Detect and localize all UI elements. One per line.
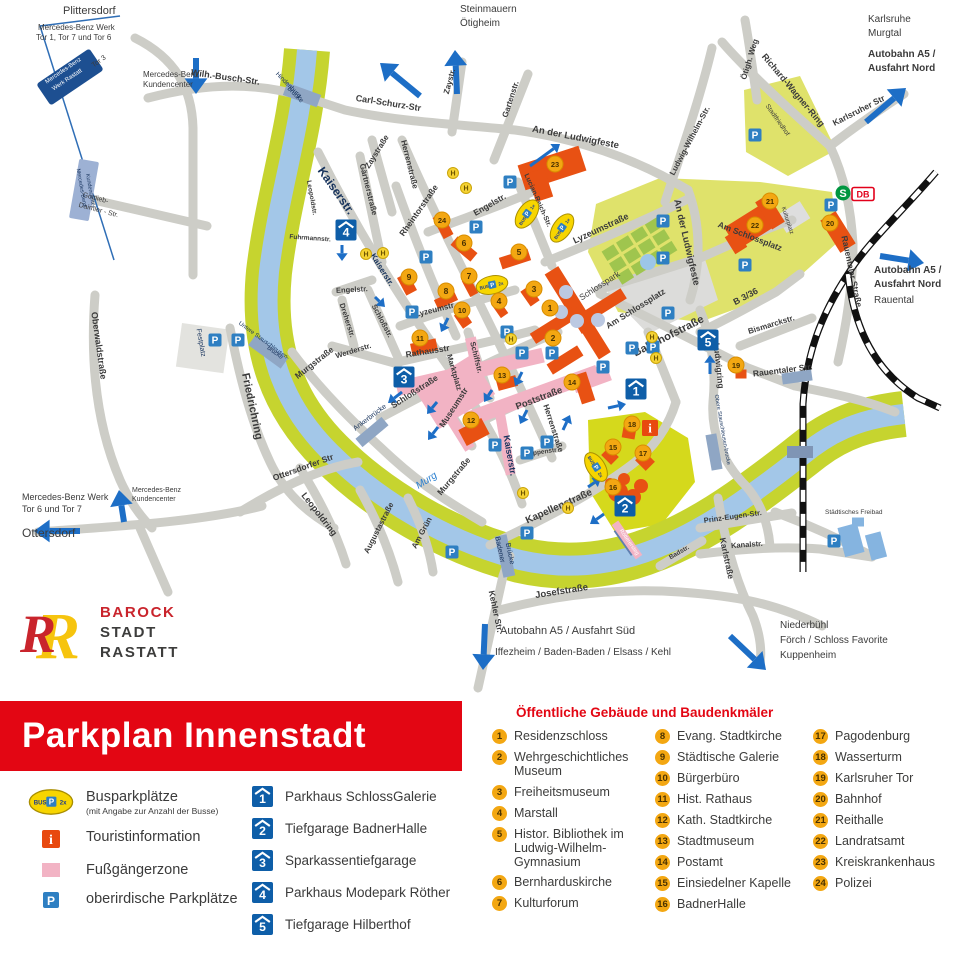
poi-marker[interactable]: 20 bbox=[822, 215, 838, 231]
svg-text:P: P bbox=[524, 529, 531, 540]
svg-text:H: H bbox=[363, 252, 368, 259]
building-number-badge: 15 bbox=[655, 876, 670, 891]
street-label: Autobahn A5 / bbox=[874, 265, 942, 276]
surface-parking-icon[interactable]: P bbox=[420, 251, 433, 264]
legend-sublabel: (mit Angabe zur Anzahl der Busse) bbox=[86, 806, 218, 816]
svg-text:P: P bbox=[49, 798, 55, 807]
building-list-item: 18Wasserturm bbox=[813, 750, 963, 765]
db-logo: DB bbox=[852, 188, 874, 201]
svg-text:3: 3 bbox=[532, 284, 537, 294]
building-list-item: 22Landratsamt bbox=[813, 834, 963, 849]
surface-parking-icon[interactable]: P bbox=[521, 447, 534, 460]
svg-text:3: 3 bbox=[259, 856, 266, 870]
poi-marker[interactable]: 15 bbox=[605, 439, 621, 455]
svg-text:2x: 2x bbox=[60, 801, 67, 807]
street-label: Förch / Schloss Favorite bbox=[780, 635, 888, 646]
poi-marker[interactable]: 11 bbox=[412, 330, 428, 346]
poi-marker[interactable]: 9 bbox=[401, 269, 417, 285]
building-label: Wehrgeschichtliches Museum bbox=[514, 750, 657, 779]
building-label: Hist. Rathaus bbox=[677, 792, 752, 806]
building-label: Bürgerbüro bbox=[677, 771, 740, 785]
building-number-badge: 1 bbox=[492, 729, 507, 744]
street-label: Tor 6 und Tor 7 bbox=[22, 504, 82, 514]
building-label: Wasserturm bbox=[835, 750, 902, 764]
svg-text:P: P bbox=[449, 548, 456, 559]
bus-stop-icon[interactable]: H bbox=[448, 168, 459, 179]
surface-parking-icon[interactable]: P bbox=[446, 546, 459, 559]
building-number-badge: 18 bbox=[813, 750, 828, 765]
building-list-item: 14Postamt bbox=[655, 855, 815, 870]
svg-text:21: 21 bbox=[766, 197, 774, 206]
parking-garage-item: 1Parkhaus SchlossGalerie bbox=[252, 786, 450, 807]
building-label: Residenzschloss bbox=[514, 729, 608, 743]
svg-text:i: i bbox=[49, 833, 53, 848]
logo-line-1: BAROCK bbox=[100, 603, 179, 623]
building-number-badge: 6 bbox=[492, 875, 507, 890]
svg-text:P: P bbox=[665, 309, 672, 320]
surface-parking-icon[interactable]: P bbox=[546, 347, 559, 360]
buildings-column-2: 8Evang. Stadtkirche9Städtische Galerie10… bbox=[655, 729, 815, 912]
bus-stop-icon[interactable]: H bbox=[461, 183, 472, 194]
svg-text:11: 11 bbox=[416, 334, 424, 343]
svg-text:6: 6 bbox=[462, 238, 467, 248]
svg-text:H: H bbox=[565, 506, 570, 513]
poi-marker[interactable]: 10 bbox=[454, 302, 470, 318]
building-label: Histor. Bibliothek im Ludwig-Wilhelm-Gym… bbox=[514, 827, 657, 870]
svg-text:P: P bbox=[519, 349, 526, 360]
parking-garage-icon[interactable]: 5 bbox=[252, 914, 273, 935]
poi-marker[interactable]: 24 bbox=[434, 212, 450, 228]
legend-item: Fußgängerzone bbox=[28, 862, 238, 878]
poi-marker[interactable]: 5 bbox=[511, 244, 527, 260]
building-label: Bernharduskirche bbox=[514, 875, 612, 889]
surface-parking-icon[interactable]: P bbox=[828, 535, 841, 548]
poi-marker[interactable]: 4 bbox=[491, 293, 507, 309]
surface-parking-icon[interactable]: P bbox=[749, 129, 762, 142]
surface-parking-icon: P bbox=[28, 891, 74, 909]
svg-text:13: 13 bbox=[498, 371, 506, 380]
street-label: Mercedes-Benz Werk bbox=[38, 23, 116, 32]
legend-label: Touristinformation bbox=[86, 829, 200, 845]
parking-garage-label: Tiefgarage Hilberthof bbox=[285, 917, 411, 932]
logo-line-2: STADT bbox=[100, 623, 179, 643]
legend-item: Poberirdische Parkplätze bbox=[28, 891, 238, 909]
building-label: Städtische Galerie bbox=[677, 750, 779, 764]
poi-marker[interactable]: 17 bbox=[635, 445, 651, 461]
parking-garage-label: Sparkassentiefgarage bbox=[285, 853, 416, 868]
building-label: Postamt bbox=[677, 855, 723, 869]
building-label: Polizei bbox=[835, 876, 872, 890]
svg-text:24: 24 bbox=[438, 216, 447, 225]
surface-parking-icon[interactable]: P bbox=[521, 527, 534, 540]
svg-text:P: P bbox=[473, 223, 480, 234]
street-label: Murgtal bbox=[868, 28, 901, 39]
parking-garage-list: 1Parkhaus SchlossGalerie2Tiefgarage Badn… bbox=[252, 786, 450, 935]
parking-garage-icon[interactable]: 1 bbox=[626, 379, 647, 400]
building-list-item: 17Pagodenburg bbox=[813, 729, 963, 744]
legend-label: Busparkplätze bbox=[86, 789, 218, 805]
svg-text:H: H bbox=[463, 186, 468, 193]
poi-marker[interactable]: 14 bbox=[564, 374, 580, 390]
building-label: Evang. Stadtkirche bbox=[677, 729, 782, 743]
building-list-item: 6Bernharduskirche bbox=[492, 875, 657, 890]
building-label: Karlsruher Tor bbox=[835, 771, 913, 785]
svg-text:H: H bbox=[653, 356, 658, 363]
street-label: Mercedes-Benz bbox=[132, 487, 182, 494]
building-number-badge: 2 bbox=[492, 750, 507, 765]
svg-text:P: P bbox=[828, 201, 835, 212]
svg-text:8: 8 bbox=[444, 286, 449, 296]
building-list-item: 7Kulturforum bbox=[492, 896, 657, 911]
surface-parking-icon[interactable]: P bbox=[662, 307, 675, 320]
parking-garage-label: Parkhaus Modepark Röther bbox=[285, 885, 450, 900]
svg-text:P: P bbox=[629, 344, 636, 355]
svg-text:P: P bbox=[544, 438, 551, 449]
building-number-badge: 19 bbox=[813, 771, 828, 786]
building-list-item: 19Karlsruher Tor bbox=[813, 771, 963, 786]
svg-text:BUS: BUS bbox=[34, 801, 47, 807]
svg-text:2: 2 bbox=[259, 824, 266, 838]
building-list-item: 4Marstall bbox=[492, 806, 657, 821]
building-list-item: 3Freiheitsmuseum bbox=[492, 785, 657, 800]
building-number-badge: 22 bbox=[813, 834, 828, 849]
building-label: Einsiedelner Kapelle bbox=[677, 876, 791, 890]
street-label: Mercedes-Benz Werk bbox=[22, 492, 109, 502]
bus-stop-icon[interactable]: H bbox=[563, 503, 574, 514]
svg-text:P: P bbox=[423, 253, 430, 264]
street-label: Städtisches Freibad bbox=[825, 509, 883, 516]
bus-stop-icon[interactable]: H bbox=[378, 248, 389, 259]
svg-text:2: 2 bbox=[622, 502, 629, 516]
svg-text:4: 4 bbox=[343, 226, 350, 240]
svg-text:19: 19 bbox=[732, 361, 740, 370]
svg-text:23: 23 bbox=[551, 160, 559, 169]
bus-parking-icon[interactable]: BUSP2x bbox=[29, 790, 72, 814]
svg-text:P: P bbox=[660, 217, 667, 228]
building-number-badge: 10 bbox=[655, 771, 670, 786]
svg-text:P: P bbox=[549, 349, 556, 360]
building-label: Stadtmuseum bbox=[677, 834, 754, 848]
building-number-badge: 9 bbox=[655, 750, 670, 765]
svg-text:P: P bbox=[492, 441, 499, 452]
building-number-badge: 17 bbox=[813, 729, 828, 744]
poi-marker[interactable]: 8 bbox=[438, 283, 454, 299]
street-label: Steinmauern bbox=[460, 4, 517, 15]
building-label: Bahnhof bbox=[835, 792, 882, 806]
poi-marker[interactable]: 19 bbox=[728, 357, 744, 373]
logo-r-emblem: R R bbox=[20, 592, 90, 674]
parking-garage-item: 4Parkhaus Modepark Röther bbox=[252, 882, 450, 903]
surface-parking-icon[interactable]: P bbox=[597, 361, 610, 374]
building-label: Marstall bbox=[514, 806, 558, 820]
building-number-badge: 4 bbox=[492, 806, 507, 821]
svg-text:P: P bbox=[235, 336, 242, 347]
legend-label: Fußgängerzone bbox=[86, 862, 188, 878]
building-list-item: 13Stadtmuseum bbox=[655, 834, 815, 849]
svg-text:P: P bbox=[524, 449, 531, 460]
surface-parking-icon[interactable]: P bbox=[489, 439, 502, 452]
city-logo: R R BAROCK STADT RASTATT bbox=[20, 592, 179, 674]
building-number-badge: 8 bbox=[655, 729, 670, 744]
svg-text:P: P bbox=[212, 336, 219, 347]
legend-item: iTouristinformation bbox=[28, 829, 238, 849]
parking-garage-icon[interactable]: 3 bbox=[394, 367, 415, 388]
parking-garage-icon[interactable]: 4 bbox=[252, 882, 273, 903]
surface-parking-icon[interactable]: P bbox=[626, 342, 639, 355]
parking-garage-item: 3Sparkassentiefgarage bbox=[252, 850, 450, 871]
building-list-item: 9Städtische Galerie bbox=[655, 750, 815, 765]
poi-marker[interactable]: 18 bbox=[624, 416, 640, 432]
parking-garage-icon[interactable]: 5 bbox=[698, 330, 719, 351]
svg-text:7: 7 bbox=[467, 271, 472, 281]
building-list-item: 21Reithalle bbox=[813, 813, 963, 828]
svg-text:i: i bbox=[648, 421, 652, 436]
building-number-badge: 13 bbox=[655, 834, 670, 849]
building-list-item: 11Hist. Rathaus bbox=[655, 792, 815, 807]
sbahn-logo: S bbox=[836, 186, 851, 201]
svg-text:H: H bbox=[508, 337, 513, 344]
poi-marker[interactable]: 21 bbox=[762, 193, 778, 209]
surface-parking-icon[interactable]: P bbox=[504, 176, 517, 189]
building-label: Kulturforum bbox=[514, 896, 579, 910]
legend-label: oberirdische Parkplätze bbox=[86, 891, 238, 907]
parking-garage-item: 2Tiefgarage BadnerHalle bbox=[252, 818, 450, 839]
street-label: Kuppenheim bbox=[780, 650, 836, 661]
parking-garage-label: Tiefgarage BadnerHalle bbox=[285, 821, 427, 836]
bus-stop-icon[interactable]: H bbox=[506, 334, 517, 345]
building-number-badge: 21 bbox=[813, 813, 828, 828]
surface-parking-icon[interactable]: P bbox=[232, 334, 245, 347]
svg-text:P: P bbox=[507, 178, 514, 189]
svg-text:P: P bbox=[752, 131, 759, 142]
parkplan-poster: PlittersdorfMercedes-Benz WerkTor 1, Tor… bbox=[0, 0, 966, 966]
tourist-info-icon[interactable]: i bbox=[642, 420, 658, 436]
svg-text:S: S bbox=[839, 188, 846, 200]
surface-parking-icon[interactable]: P bbox=[739, 259, 752, 272]
parking-garage-icon[interactable]: 3 bbox=[252, 850, 273, 871]
parking-garage-icon[interactable]: 2 bbox=[252, 818, 273, 839]
building-number-badge: 23 bbox=[813, 855, 828, 870]
pedestrian-zone-icon bbox=[28, 862, 74, 878]
page-title-banner: Parkplan Innenstadt bbox=[0, 701, 462, 771]
surface-parking-icon[interactable]: P bbox=[516, 347, 529, 360]
svg-text:DB: DB bbox=[857, 190, 870, 200]
street-label: Tor 1, Tor 7 und Tor 6 bbox=[36, 33, 112, 42]
svg-text:18: 18 bbox=[628, 420, 636, 429]
building-list-item: 10Bürgerbüro bbox=[655, 771, 815, 786]
buildings-list-title: Öffentliche Gebäude und Baudenkmäler bbox=[516, 705, 773, 720]
building-label: Freiheitsmuseum bbox=[514, 785, 610, 799]
building-label: Kreiskrankenhaus bbox=[835, 855, 935, 869]
street-label: Rauental bbox=[874, 295, 914, 306]
svg-text:4: 4 bbox=[259, 888, 266, 902]
poi-marker[interactable]: 6 bbox=[456, 235, 472, 251]
tourist-info-icon: i bbox=[28, 829, 74, 849]
poi-marker[interactable]: 1 bbox=[542, 300, 558, 316]
street-label: Ausfahrt Nord bbox=[868, 63, 935, 74]
bus-stop-icon[interactable]: H bbox=[647, 332, 658, 343]
street-label: Karlsruhe bbox=[868, 14, 911, 25]
building-list-item: 12Kath. Stadtkirche bbox=[655, 813, 815, 828]
building-number-badge: 16 bbox=[655, 897, 670, 912]
building-label: Kath. Stadtkirche bbox=[677, 813, 772, 827]
building-number-badge: 3 bbox=[492, 785, 507, 800]
svg-text:P: P bbox=[742, 261, 749, 272]
legend-item: BUSP2xBusparkplätze(mit Angabe zur Anzah… bbox=[28, 789, 238, 816]
building-list-item: 15Einsiedelner Kapelle bbox=[655, 876, 815, 891]
svg-text:2: 2 bbox=[551, 333, 556, 343]
street-label: Kundencenter bbox=[143, 80, 193, 89]
park-pond bbox=[640, 254, 656, 270]
building-number-badge: 14 bbox=[655, 855, 670, 870]
building-list-item: 1Residenzschloss bbox=[492, 729, 657, 744]
svg-text:P: P bbox=[650, 343, 657, 354]
poi-marker[interactable]: 7 bbox=[461, 268, 477, 284]
surface-parking-icon[interactable]: P bbox=[470, 221, 483, 234]
svg-text:H: H bbox=[380, 251, 385, 258]
bus-stop-icon[interactable]: H bbox=[361, 249, 372, 260]
svg-text:14: 14 bbox=[568, 378, 577, 387]
svg-text:1: 1 bbox=[548, 303, 553, 313]
svg-text:3: 3 bbox=[401, 373, 408, 387]
street-label: Plittersdorf bbox=[63, 5, 117, 17]
parking-garage-item: 5Tiefgarage Hilberthof bbox=[252, 914, 450, 935]
svg-text:9: 9 bbox=[407, 272, 412, 282]
poi-marker[interactable]: 23 bbox=[547, 156, 563, 172]
svg-text:17: 17 bbox=[639, 449, 647, 458]
street-label: Iffezheim / Baden-Baden / Elsass / Kehl bbox=[495, 647, 671, 658]
svg-text:H: H bbox=[520, 491, 525, 498]
map-legend: BUSP2xBusparkplätze(mit Angabe zur Anzah… bbox=[28, 789, 238, 909]
bus-stop-icon[interactable]: H bbox=[518, 488, 529, 499]
svg-text:P: P bbox=[409, 308, 416, 319]
parking-garage-icon[interactable]: 4 bbox=[336, 220, 357, 241]
svg-text:4: 4 bbox=[497, 296, 502, 306]
building-list-item: 16BadnerHalle bbox=[655, 897, 815, 912]
street-label: Autobahn A5 / bbox=[868, 49, 936, 60]
surface-parking-icon[interactable]: P bbox=[541, 436, 554, 449]
poi-marker[interactable]: 12 bbox=[463, 412, 479, 428]
building-list-item: 5Histor. Bibliothek im Ludwig-Wilhelm-Gy… bbox=[492, 827, 657, 870]
street-label: Kundencenter bbox=[132, 496, 176, 503]
svg-text:H: H bbox=[450, 171, 455, 178]
page-title: Parkplan Innenstadt bbox=[22, 716, 366, 756]
building-number-badge: 7 bbox=[492, 896, 507, 911]
svg-text:5: 5 bbox=[705, 336, 712, 350]
buildings-column-3: 17Pagodenburg18Wasserturm19Karlsruher To… bbox=[813, 729, 963, 891]
building-number-badge: 20 bbox=[813, 792, 828, 807]
surface-parking-icon[interactable]: P bbox=[825, 199, 838, 212]
building-label: Pagodenburg bbox=[835, 729, 910, 743]
svg-text:5: 5 bbox=[259, 920, 266, 934]
street-label: Ottersdorf bbox=[22, 526, 76, 540]
building-list-item: 20Bahnhof bbox=[813, 792, 963, 807]
building-number-badge: 5 bbox=[492, 827, 507, 842]
svg-text:5: 5 bbox=[517, 247, 522, 257]
svg-text:12: 12 bbox=[467, 416, 475, 425]
svg-text:22: 22 bbox=[751, 221, 759, 230]
street-label: Niederbühl bbox=[780, 620, 828, 631]
building-label: Reithalle bbox=[835, 813, 884, 827]
logo-text: BAROCK STADT RASTATT bbox=[100, 603, 179, 663]
building-number-badge: 12 bbox=[655, 813, 670, 828]
building-label: BadnerHalle bbox=[677, 897, 746, 911]
surface-parking-icon[interactable]: P bbox=[209, 334, 222, 347]
surface-parking-icon[interactable]: P bbox=[657, 215, 670, 228]
street-label: Autobahn A5 / Ausfahrt Süd bbox=[500, 625, 635, 637]
building-list-item: 23Kreiskrankenhaus bbox=[813, 855, 963, 870]
svg-text:20: 20 bbox=[826, 219, 834, 228]
svg-text:P: P bbox=[831, 537, 838, 548]
parking-garage-icon[interactable]: 2 bbox=[615, 496, 636, 517]
poi-marker[interactable]: 22 bbox=[747, 217, 763, 233]
parking-garage-icon[interactable]: 1 bbox=[252, 786, 273, 807]
logo-line-3: RASTATT bbox=[100, 643, 179, 663]
poi-marker[interactable]: 3 bbox=[526, 281, 542, 297]
poi-marker[interactable]: 16 bbox=[605, 479, 621, 495]
surface-parking-icon[interactable]: P bbox=[657, 252, 670, 265]
buildings-column-1: 1Residenzschloss2Wehrgeschichtliches Mus… bbox=[492, 729, 657, 911]
building-number-badge: 24 bbox=[813, 876, 828, 891]
poi-marker[interactable]: 2 bbox=[545, 330, 561, 346]
building-list-item: 24Polizei bbox=[813, 876, 963, 891]
svg-text:1: 1 bbox=[633, 385, 640, 399]
logo-r-red: R bbox=[20, 604, 56, 664]
svg-text:1: 1 bbox=[259, 792, 266, 806]
building-list-item: 2Wehrgeschichtliches Museum bbox=[492, 750, 657, 779]
svg-text:H: H bbox=[649, 335, 654, 342]
bus-stop-icon[interactable]: H bbox=[651, 353, 662, 364]
street-label: Ausfahrt Nord bbox=[874, 279, 941, 290]
svg-text:15: 15 bbox=[609, 443, 617, 452]
bus-parking-icon: BUSP2x bbox=[28, 789, 74, 815]
poi-marker[interactable]: 13 bbox=[494, 367, 510, 383]
svg-text:P: P bbox=[600, 363, 607, 374]
parking-garage-label: Parkhaus SchlossGalerie bbox=[285, 789, 437, 804]
street-label: Ötigheim bbox=[460, 17, 500, 29]
building-number-badge: 11 bbox=[655, 792, 670, 807]
svg-text:16: 16 bbox=[609, 483, 617, 492]
surface-parking-icon[interactable]: P bbox=[406, 306, 419, 319]
svg-text:P: P bbox=[660, 254, 667, 265]
building-list-item: 8Evang. Stadtkirche bbox=[655, 729, 815, 744]
building-label: Landratsamt bbox=[835, 834, 904, 848]
svg-text:10: 10 bbox=[458, 306, 466, 315]
street-label: Engelstr. bbox=[336, 284, 368, 295]
svg-text:P: P bbox=[47, 894, 55, 908]
